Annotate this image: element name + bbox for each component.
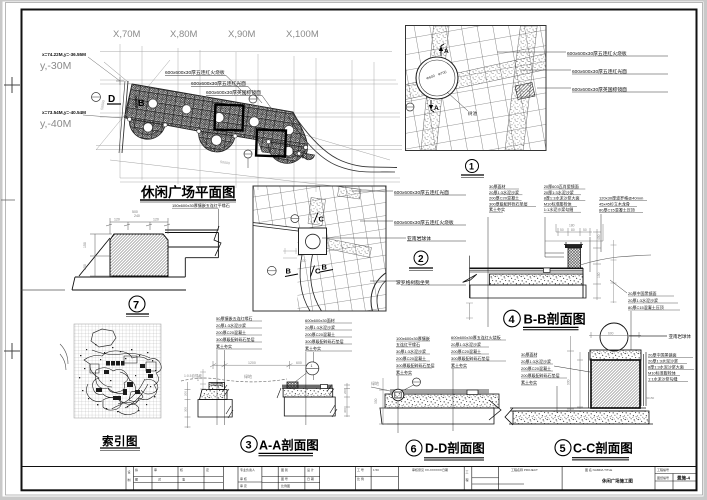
svg-text:8厚1:3水泥沙浆大面: 8厚1:3水泥沙浆大面 — [648, 364, 684, 370]
svg-text:审: 审 — [154, 467, 157, 472]
svg-text:200厚C20混凝土: 200厚C20混凝土 — [305, 331, 335, 337]
svg-text:x=74.22M,y=-36.55M: x=74.22M,y=-36.55M — [42, 52, 86, 57]
svg-text:20厚1:3水泥沙浆: 20厚1:3水泥沙浆 — [489, 189, 519, 195]
svg-text:素土夯实: 素土夯实 — [216, 343, 232, 349]
svg-text:C: C — [319, 215, 325, 224]
svg-text:600x600x30厚五连红光面: 600x600x30厚五连红光面 — [191, 80, 246, 87]
svg-text:50厚镶嵌五连红缘石: 50厚镶嵌五连红缘石 — [216, 315, 252, 321]
svg-text:600: 600 — [301, 259, 307, 263]
svg-text:150: 150 — [597, 272, 601, 278]
svg-text:300厚级配碎砾石垫层: 300厚级配碎砾石垫层 — [451, 355, 490, 361]
svg-text:B: B — [138, 98, 145, 108]
svg-text:比例图: 比例图 — [281, 483, 290, 488]
svg-text:1: 1 — [311, 364, 313, 368]
svg-text:2: 2 — [418, 254, 424, 265]
svg-text:B: B — [286, 267, 292, 276]
svg-text:制: 制 — [128, 477, 131, 482]
svg-text:150: 150 — [196, 376, 200, 381]
svg-text:45x45杉立木龙骨: 45x45杉立木龙骨 — [599, 201, 630, 207]
svg-text:600x600x30面材: 600x600x30面材 — [305, 317, 335, 323]
svg-text:审 核: 审 核 — [240, 476, 247, 481]
svg-text:C: C — [315, 267, 321, 276]
svg-text:比 例: 比 例 — [357, 476, 364, 481]
svg-text:120: 120 — [114, 218, 120, 222]
svg-text:亚南岩球体: 亚南岩球体 — [669, 333, 692, 340]
svg-text:20厚中国黑镜面: 20厚中国黑镜面 — [648, 352, 676, 358]
svg-text:A: A — [434, 105, 439, 112]
svg-text:1:50: 1:50 — [373, 468, 379, 472]
svg-text:80厚C15混凝土压顶: 80厚C15混凝土压顶 — [628, 304, 664, 310]
svg-text:600x600x30厚五连红火烧板: 600x600x30厚五连红火烧板 — [451, 334, 501, 340]
svg-text:300厚级配碎砾石垫层: 300厚级配碎砾石垫层 — [305, 338, 344, 344]
svg-text:图 号: 图 号 — [281, 476, 288, 481]
svg-text:D-D剖面图: D-D剖面图 — [425, 441, 485, 456]
svg-text:设: 设 — [128, 469, 131, 474]
svg-text:核: 核 — [180, 467, 183, 472]
svg-text:D: D — [108, 94, 115, 105]
svg-text:审核意见 XX-XXXXXX: 审核意见 XX-XXXXXX — [412, 467, 442, 472]
svg-text:20厚1:3水泥沙浆: 20厚1:3水泥沙浆 — [216, 322, 246, 328]
svg-text:300厚级配碎砾石垫层: 300厚级配碎砾石垫层 — [396, 362, 435, 368]
svg-text:50: 50 — [583, 228, 587, 232]
svg-text:工: 工 — [466, 470, 469, 474]
svg-text:工程名称 PROJECT: 工程名称 PROJECT — [511, 467, 538, 472]
svg-text:7: 7 — [133, 300, 139, 312]
svg-text:8厚1:3水泥沙浆大面: 8厚1:3水泥沙浆大面 — [544, 195, 580, 201]
svg-text:X,80M: X,80M — [170, 29, 198, 40]
svg-text:B-B剖面图: B-B剖面图 — [524, 312, 586, 327]
svg-text:五连红平缘石: 五连红平缘石 — [396, 341, 420, 347]
svg-text:日 期: 日 期 — [307, 476, 314, 481]
svg-text:600: 600 — [608, 332, 614, 336]
svg-text:240: 240 — [134, 214, 140, 218]
svg-text:50x50: 50x50 — [646, 396, 655, 400]
svg-text:素土夯实: 素土夯实 — [451, 362, 467, 368]
svg-text:600x600x30厚五连红火烧板: 600x600x30厚五连红火烧板 — [165, 69, 225, 76]
svg-text:450: 450 — [597, 234, 601, 240]
svg-text:200: 200 — [184, 391, 188, 396]
svg-text:200厚C20混凝土: 200厚C20混凝土 — [451, 348, 481, 354]
svg-text:350: 350 — [374, 398, 378, 404]
svg-text:1:1水泥沙浆勾缝: 1:1水泥沙浆勾缝 — [648, 376, 678, 382]
svg-text:20厚1:3水泥沙浆: 20厚1:3水泥沙浆 — [451, 341, 481, 347]
svg-text:150x600x30厚镶嵌五连红平缘石: 150x600x30厚镶嵌五连红平缘石 — [172, 202, 230, 208]
svg-text:20厚1:3水泥沙浆: 20厚1:3水泥沙浆 — [544, 189, 574, 195]
svg-text:索引图: 索引图 — [102, 434, 138, 448]
svg-text:300: 300 — [343, 408, 347, 413]
svg-text:拟: 拟 — [135, 467, 138, 472]
svg-text:1200: 1200 — [248, 361, 256, 365]
svg-text:素土夯实: 素土夯实 — [521, 379, 537, 385]
svg-text:y,-30M: y,-30M — [40, 60, 71, 72]
svg-text:绿地: 绿地 — [244, 373, 252, 379]
svg-text:5: 5 — [560, 443, 566, 455]
svg-text:120x30厚波罗格@40mm: 120x30厚波罗格@40mm — [599, 195, 644, 201]
svg-text:图 名 NAMDA TITLE: 图 名 NAMDA TITLE — [585, 467, 612, 472]
svg-text:素土夯实: 素土夯实 — [489, 206, 505, 212]
svg-text:200厚C20混凝土: 200厚C20混凝土 — [521, 365, 551, 371]
svg-text:1:1水泥沙浆勾缝: 1:1水泥沙浆勾缝 — [544, 206, 574, 212]
svg-text:30厚1:3水泥沙浆: 30厚1:3水泥沙浆 — [396, 348, 426, 354]
svg-text:工程编号: 工程编号 — [657, 467, 669, 472]
svg-text:C-C剖面图: C-C剖面图 — [573, 440, 633, 455]
svg-text:休闲广场施工图: 休闲广场施工图 — [601, 478, 633, 485]
svg-text:审 定: 审 定 — [240, 483, 247, 488]
svg-text:定: 定 — [206, 467, 209, 472]
svg-text:20厚中国黑镜面: 20厚中国黑镜面 — [628, 290, 656, 296]
svg-text:素土夯实: 素土夯实 — [396, 369, 412, 375]
svg-text:B: B — [322, 263, 328, 272]
svg-text:A-A剖面图: A-A剖面图 — [259, 438, 319, 453]
svg-text:工 号: 工 号 — [357, 467, 364, 472]
svg-text:80: 80 — [571, 228, 575, 232]
svg-text:6: 6 — [411, 444, 417, 456]
svg-text:X,70M: X,70M — [113, 29, 141, 40]
svg-text:500: 500 — [132, 210, 138, 214]
svg-text:3: 3 — [246, 440, 252, 452]
svg-text:绿地: 绿地 — [371, 380, 379, 386]
svg-text:100x600x30厚镶嵌: 100x600x30厚镶嵌 — [396, 335, 430, 341]
svg-text:专业负责人: 专业负责人 — [240, 467, 255, 472]
svg-text:程: 程 — [466, 477, 469, 482]
svg-text:x=73.54M,y=-40.54M: x=73.54M,y=-40.54M — [42, 110, 86, 115]
svg-text:200厚级配碎砾石垫层: 200厚级配碎砾石垫层 — [521, 372, 560, 378]
svg-text:y,-40M: y,-40M — [40, 118, 71, 130]
svg-text:200: 200 — [343, 389, 347, 394]
svg-text:20厚603瓦肖瓷镜面: 20厚603瓦肖瓷镜面 — [544, 183, 579, 189]
svg-text:900: 900 — [567, 379, 571, 385]
svg-text:设 计: 设 计 — [307, 467, 314, 472]
svg-text:X,100M: X,100M — [286, 29, 319, 40]
svg-text:600: 600 — [296, 361, 302, 365]
svg-text:图: 图 — [135, 478, 138, 482]
svg-text:20厚1:3水泥沙浆: 20厚1:3水泥沙浆 — [521, 358, 551, 364]
svg-text:树池: 树池 — [468, 110, 477, 117]
svg-text:150: 150 — [83, 264, 87, 270]
svg-text:300厚级配碎砾石垫层: 300厚级配碎砾石垫层 — [216, 336, 255, 342]
svg-text:景施-4: 景施-4 — [677, 475, 690, 482]
svg-text:180: 180 — [569, 224, 575, 228]
svg-text:1: 1 — [469, 162, 474, 172]
svg-text:准: 准 — [182, 477, 185, 482]
svg-text:图 别: 图 别 — [281, 467, 288, 472]
svg-text:20厚1:3水泥沙浆: 20厚1:3水泥沙浆 — [628, 297, 658, 303]
svg-text:300厚级配碎砾石垫层: 300厚级配碎砾石垫层 — [489, 200, 528, 206]
svg-text:120: 120 — [153, 218, 159, 222]
svg-text:4: 4 — [509, 314, 516, 326]
svg-text:80厚C15混凝土压顶: 80厚C15混凝土压顶 — [599, 207, 635, 213]
svg-text:M10标准膨栓体: M10标准膨栓体 — [544, 200, 572, 206]
svg-text:30厚面材: 30厚面材 — [521, 351, 537, 357]
svg-text:A: A — [444, 48, 449, 55]
svg-text:M10标准膨栓体: M10标准膨栓体 — [648, 370, 676, 376]
svg-text:20厚1:3水泥沙浆: 20厚1:3水泥沙浆 — [305, 324, 335, 330]
svg-text:50: 50 — [560, 228, 564, 232]
svg-text:200厚C20混凝土: 200厚C20混凝土 — [396, 355, 426, 361]
svg-text:日期: 日期 — [442, 467, 448, 472]
svg-text:20厚1:3水泥沙浆: 20厚1:3水泥沙浆 — [648, 358, 678, 364]
svg-text:休闲广场平面图: 休闲广场平面图 — [140, 184, 236, 200]
svg-text:300: 300 — [184, 407, 188, 412]
svg-text:200厚C20混凝土: 200厚C20混凝土 — [216, 329, 246, 335]
svg-text:对: 对 — [158, 477, 161, 482]
svg-text:30厚面材: 30厚面材 — [489, 183, 505, 189]
svg-text:150: 150 — [83, 242, 87, 248]
svg-text:200厚C20混凝土: 200厚C20混凝土 — [489, 195, 519, 201]
svg-text:素土夯实: 素土夯实 — [305, 345, 321, 351]
svg-text:图纸编号: 图纸编号 — [657, 475, 669, 480]
svg-text:X,90M: X,90M — [228, 29, 256, 40]
